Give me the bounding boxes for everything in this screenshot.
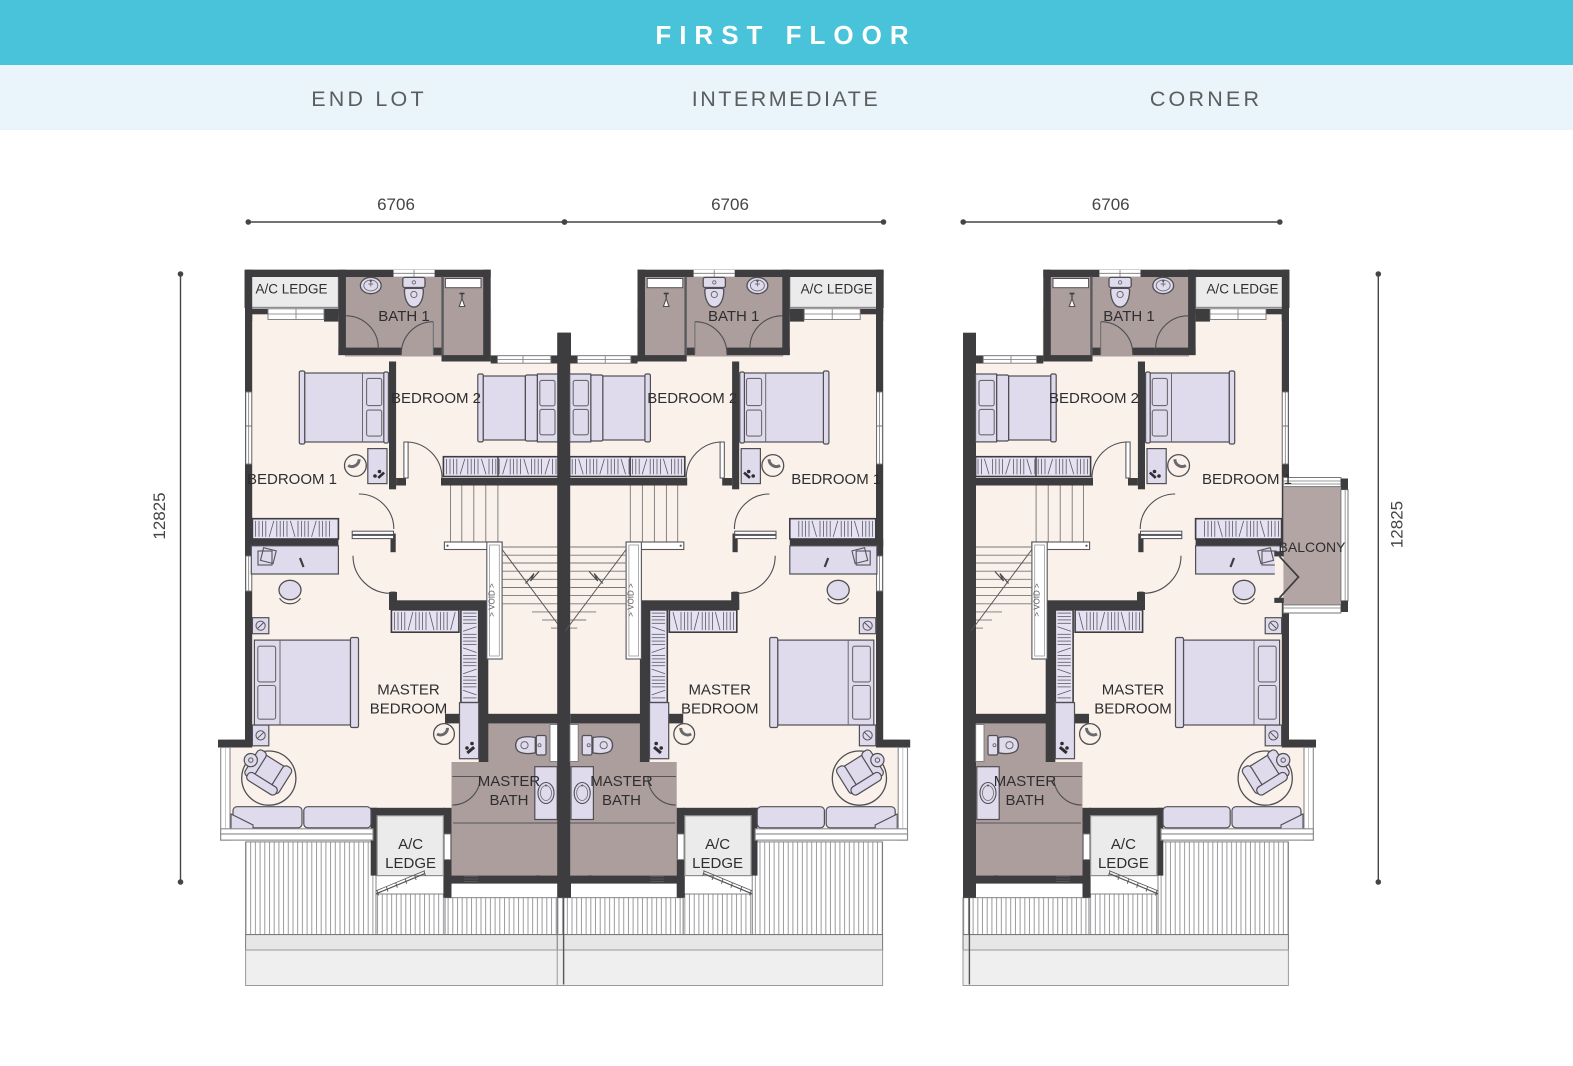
svg-text:CORNER: CORNER — [1150, 87, 1262, 111]
svg-text:> VOID >: > VOID > — [488, 583, 497, 617]
svg-text:END LOT: END LOT — [311, 87, 427, 111]
svg-text:A/C LEDGE: A/C LEDGE — [255, 282, 327, 297]
svg-text:FIRST FLOOR: FIRST FLOOR — [655, 20, 916, 50]
svg-text:6706: 6706 — [1092, 195, 1130, 214]
svg-text:MASTER: MASTER — [994, 773, 1057, 790]
svg-text:MASTER: MASTER — [1102, 682, 1165, 699]
svg-text:BALCONY: BALCONY — [1279, 539, 1347, 555]
svg-text:A/C: A/C — [1111, 836, 1136, 853]
svg-text:BEDROOM: BEDROOM — [681, 701, 759, 718]
svg-text:12825: 12825 — [150, 492, 169, 539]
svg-text:LEDGE: LEDGE — [385, 855, 436, 872]
svg-text:MASTER: MASTER — [688, 682, 751, 699]
svg-text:A/C: A/C — [705, 836, 730, 853]
svg-text:BATH: BATH — [602, 792, 641, 809]
svg-text:12825: 12825 — [1387, 501, 1406, 548]
svg-text:MASTER: MASTER — [590, 773, 653, 790]
svg-text:BATH 1: BATH 1 — [708, 308, 759, 325]
svg-text:MASTER: MASTER — [377, 682, 440, 699]
svg-text:BEDROOM: BEDROOM — [1094, 701, 1172, 718]
svg-text:INTERMEDIATE: INTERMEDIATE — [692, 87, 880, 111]
svg-text:BEDROOM 1: BEDROOM 1 — [1202, 471, 1292, 488]
svg-text:BEDROOM 2: BEDROOM 2 — [391, 390, 481, 407]
svg-text:BATH: BATH — [490, 792, 529, 809]
svg-text:BEDROOM 1: BEDROOM 1 — [791, 471, 881, 488]
svg-text:BATH 1: BATH 1 — [1103, 308, 1154, 325]
svg-text:BEDROOM 2: BEDROOM 2 — [647, 390, 737, 407]
svg-text:MASTER: MASTER — [478, 773, 541, 790]
svg-text:A/C: A/C — [398, 836, 423, 853]
svg-text:BATH 1: BATH 1 — [378, 308, 429, 325]
svg-text:6706: 6706 — [711, 195, 749, 214]
svg-text:BEDROOM: BEDROOM — [370, 701, 448, 718]
svg-text:BATH: BATH — [1006, 792, 1045, 809]
svg-text:A/C LEDGE: A/C LEDGE — [1206, 282, 1278, 297]
svg-text:> VOID >: > VOID > — [1032, 583, 1041, 617]
svg-text:LEDGE: LEDGE — [692, 855, 743, 872]
svg-text:6706: 6706 — [377, 195, 415, 214]
svg-text:BEDROOM 1: BEDROOM 1 — [247, 471, 337, 488]
svg-text:LEDGE: LEDGE — [1098, 855, 1149, 872]
svg-text:A/C LEDGE: A/C LEDGE — [801, 282, 873, 297]
svg-text:> VOID >: > VOID > — [627, 583, 636, 617]
svg-text:BEDROOM 2: BEDROOM 2 — [1049, 390, 1139, 407]
